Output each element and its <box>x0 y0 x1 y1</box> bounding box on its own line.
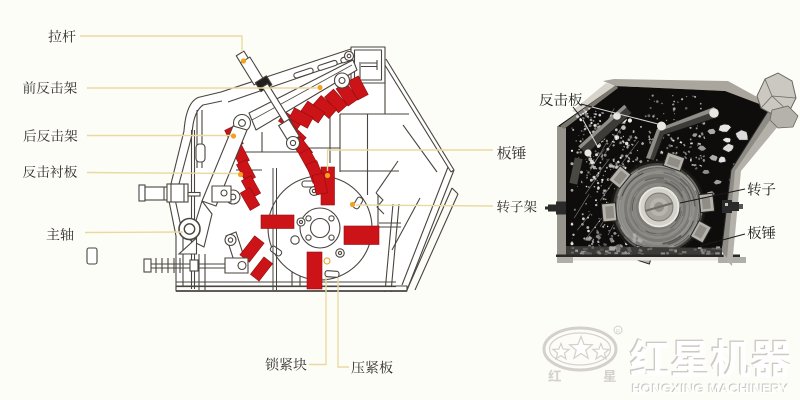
svg-text:HONGXING MACHINERY: HONGXING MACHINERY <box>632 384 789 396</box>
svg-text:R: R <box>616 329 620 335</box>
